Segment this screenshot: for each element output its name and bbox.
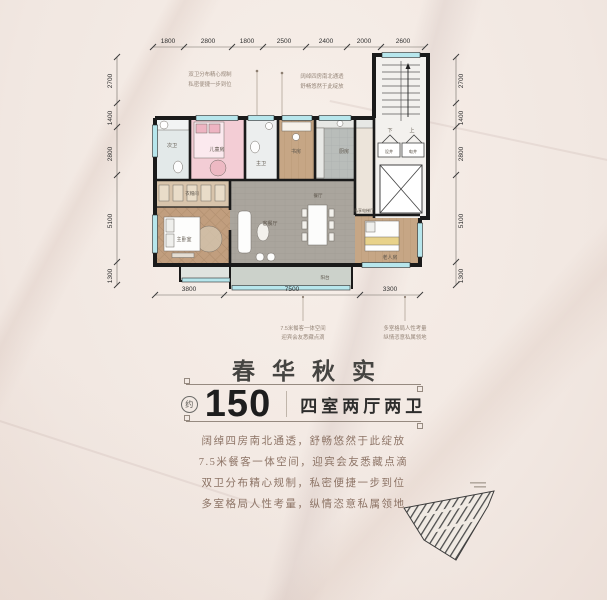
- dim-top-2: 1800: [240, 38, 255, 45]
- room-label-living: 客餐厅: [262, 220, 277, 227]
- area-value: 150: [205, 386, 271, 422]
- dim-right-2: 2800: [458, 146, 465, 161]
- dim-left-1: 1400: [107, 110, 114, 125]
- dim-bottom-0: 3800: [182, 286, 197, 293]
- callout-tl-line1: 双卫分布精心规制: [188, 70, 231, 78]
- approx-circle-badge: 约: [181, 396, 198, 413]
- dim-left-2: 2800: [107, 146, 114, 161]
- rule-corner-mark: [417, 423, 423, 429]
- dim-left-3: 5100: [107, 213, 114, 228]
- callout-bl-line2: 迎宾会友悉藏点滴: [281, 333, 324, 341]
- label-stair-up: 上: [409, 127, 414, 134]
- label-shaft2: 电井: [409, 148, 417, 155]
- divider-rule-bottom: [186, 421, 421, 422]
- room-label-dining: 餐厅: [314, 192, 323, 199]
- site-plan-sketch: [398, 480, 510, 577]
- room-label-study: 书房: [291, 148, 301, 155]
- floor-plan: 次卫 儿童房 主卫 书房 厨房 衣帽间 主卧室 客餐厅 餐厅 老人房 阳台 私享…: [60, 25, 480, 345]
- callout-br-line2: 纵情恣意私属领地: [383, 333, 427, 341]
- floorplan-poster: { "plan": { "dims_top": ["1800","2800","…: [0, 0, 607, 600]
- rule-corner-mark: [184, 378, 190, 384]
- callout-tr-line1: 阔绰四房南北通透: [300, 72, 344, 80]
- vertical-divider: [286, 391, 287, 417]
- dim-top-3: 2500: [277, 38, 292, 45]
- dim-right-4: 1300: [458, 268, 465, 283]
- description-line: 7.5米餐客一体空间，迎宾会友悉藏点滴: [0, 452, 607, 473]
- description-paragraph: 阔绰四房南北通透，舒畅悠然于此绽放 7.5米餐客一体空间，迎宾会友悉藏点滴 双卫…: [0, 431, 607, 515]
- dim-top-1: 2800: [201, 38, 216, 45]
- dim-right-3: 5100: [458, 213, 465, 228]
- room-label-bath2: 次卫: [167, 142, 177, 149]
- label-shaft1: 设井: [385, 148, 393, 155]
- description-line: 双卫分布精心规制，私密便捷一步到位: [0, 473, 607, 494]
- dim-top-4: 2400: [319, 38, 334, 45]
- unit-type-label: 四室两厅两卫: [300, 392, 426, 417]
- callout-bl-line1: 7.5米餐客一体空间: [280, 324, 325, 332]
- room-label-elder: 老人房: [382, 254, 397, 261]
- dim-left-4: 1300: [107, 268, 114, 283]
- dim-top-0: 1800: [161, 38, 176, 45]
- room-label-kids: 儿童房: [209, 146, 224, 153]
- dim-bottom-2: 3300: [383, 286, 398, 293]
- site-plan-shape: [404, 491, 494, 560]
- callout-br-line1: 多室格局人性考量: [383, 324, 427, 332]
- dim-top-6: 2600: [396, 38, 411, 45]
- room-label-master: 主卧室: [176, 236, 191, 243]
- dim-right-1: 1400: [458, 110, 465, 125]
- label-stair-down: 下: [387, 128, 392, 134]
- site-plan-svg: [398, 480, 510, 572]
- callout-tl-line2: 私密便捷一步到位: [188, 80, 232, 88]
- dim-bottom-1: 7500: [285, 286, 300, 293]
- room-label-kitchen: 厨房: [339, 148, 349, 155]
- room-label-balcony: 阳台: [321, 274, 330, 281]
- dim-right-0: 2700: [458, 73, 465, 88]
- dim-left-0: 2700: [107, 73, 114, 88]
- callout-tr-line2: 舒畅悠然于此绽放: [300, 82, 344, 90]
- room-label-bath1: 主卫: [256, 160, 266, 167]
- site-plan-text-marks: [470, 482, 486, 488]
- description-line: 多室格局人性考量，纵情恣意私属领地: [0, 494, 607, 515]
- dim-top-5: 2000: [357, 38, 372, 45]
- page-title: 春华秋实: [0, 352, 607, 386]
- rule-corner-mark: [184, 415, 190, 421]
- room-label-elevator-hall: 私享电梯厅: [354, 207, 374, 213]
- description-line: 阔绰四房南北通透，舒畅悠然于此绽放: [0, 431, 607, 452]
- room-label-closet: 衣帽间: [185, 190, 199, 197]
- area-row: 约 150 四室两厅两卫: [0, 386, 607, 422]
- floor-plan-svg: 次卫 儿童房 主卫 书房 厨房 衣帽间 主卧室 客餐厅 餐厅 老人房 阳台 私享…: [60, 25, 480, 345]
